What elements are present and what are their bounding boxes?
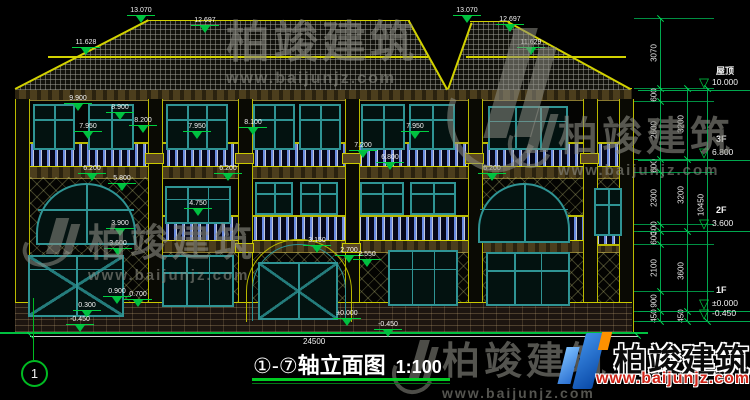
elevation-marker-triangle bbox=[117, 184, 127, 191]
cad-elevation-canvas: 2450013.07012.69711.62813.07012.69711.62… bbox=[0, 0, 750, 400]
level-line bbox=[638, 321, 750, 322]
elevation-marker: -0.450 bbox=[371, 321, 405, 337]
level-line bbox=[638, 90, 750, 91]
dimension-text: 2100 bbox=[650, 259, 659, 277]
elevation-marker: 11.628 bbox=[69, 39, 103, 55]
elevation-marker: ±0.000 bbox=[330, 310, 364, 326]
elevation-marker-value: 7.950 bbox=[71, 123, 105, 131]
elevation-marker: 2.550 bbox=[350, 251, 384, 267]
elevation-marker-triangle bbox=[136, 16, 146, 23]
elevation-marker: 7.950 bbox=[398, 123, 432, 139]
level-elevation-text: 10.000 bbox=[712, 77, 738, 87]
elevation-marker-value: 0.700 bbox=[121, 291, 155, 299]
axis-leader-line bbox=[33, 298, 34, 360]
elevation-marker-value: ±0.000 bbox=[330, 310, 364, 318]
dimension-text: 900 bbox=[650, 294, 659, 307]
elevation-marker-triangle bbox=[192, 132, 202, 139]
elevation-marker: 6.200 bbox=[211, 165, 245, 181]
level-name-label: 2F bbox=[716, 205, 727, 215]
extension-line bbox=[634, 18, 714, 19]
elevation-marker-value: 12.697 bbox=[493, 16, 527, 24]
elevation-marker-triangle bbox=[248, 128, 258, 135]
elevation-marker-value: 8.200 bbox=[126, 117, 160, 125]
elevation-marker-value: 7.950 bbox=[398, 123, 432, 131]
elevation-marker-value: 5.800 bbox=[105, 175, 139, 183]
elevation-marker-value: 13.070 bbox=[450, 7, 484, 15]
elevation-marker: 5.800 bbox=[105, 175, 139, 191]
elevation-marker-triangle bbox=[75, 325, 85, 332]
elevation-marker: 7.950 bbox=[71, 123, 105, 139]
elevation-marker: 8.200 bbox=[126, 117, 160, 133]
elevation-marker-value: 8.900 bbox=[103, 104, 137, 112]
elevation-marker-value: 3.150 bbox=[300, 237, 334, 245]
elevation-marker-value: -0.450 bbox=[63, 316, 97, 324]
elevation-marker-value: 12.697 bbox=[188, 17, 222, 25]
elevation-marker-value: 6.200 bbox=[211, 165, 245, 173]
watermark-url-text: www.baijunjz.com bbox=[88, 267, 249, 284]
elevation-marker-triangle bbox=[383, 330, 393, 337]
brand-logo: 柏竣建筑 www.baijunjz.com bbox=[552, 328, 750, 400]
elevation-marker-triangle bbox=[342, 319, 352, 326]
elevation-marker-value: 7.200 bbox=[346, 142, 380, 150]
elevation-marker: 6.800 bbox=[373, 154, 407, 170]
elevation-marker-triangle bbox=[200, 26, 210, 33]
elevation-marker-value: 6.800 bbox=[373, 154, 407, 162]
elevation-marker-triangle bbox=[87, 174, 97, 181]
elevation-marker-triangle bbox=[223, 174, 233, 181]
watermark-url-text: www.baijunjz.com bbox=[558, 162, 719, 179]
extension-line bbox=[634, 291, 714, 292]
elevation-marker-triangle bbox=[115, 113, 125, 120]
elevation-marker-value: 0.300 bbox=[70, 302, 104, 310]
elevation-marker: 8.100 bbox=[236, 119, 270, 135]
elevation-marker-value: 6.200 bbox=[75, 165, 109, 173]
level-elevation-text: ±0.000 bbox=[712, 298, 738, 308]
extension-line bbox=[634, 101, 714, 102]
dimension-text: 600 bbox=[650, 231, 659, 244]
level-name-label: 屋顶 bbox=[716, 64, 734, 77]
axis-range-label: ①-⑦ bbox=[253, 355, 298, 378]
ground-dim-text: 24500 bbox=[300, 337, 328, 346]
drawing-name-label: 轴立面图 bbox=[298, 353, 386, 378]
level-triangle-icon: ▽ bbox=[699, 217, 709, 230]
elevation-marker-triangle bbox=[312, 246, 322, 253]
elevation-marker-triangle bbox=[362, 260, 372, 267]
title-underline-thick bbox=[252, 378, 450, 381]
elevation-marker-value: 13.070 bbox=[124, 7, 158, 15]
watermark-brand-text: 柏竣建筑 bbox=[558, 115, 734, 159]
elevation-marker-triangle bbox=[83, 132, 93, 139]
brand-logo-url: www.baijunjz.com bbox=[596, 370, 750, 388]
elevation-marker-triangle bbox=[385, 163, 395, 170]
drawing-scale-label: 1:100 bbox=[396, 357, 442, 377]
elevation-marker: 6.200 bbox=[75, 165, 109, 181]
elevation-marker: 9.900 bbox=[61, 95, 95, 111]
dimension-text: 10450 bbox=[697, 193, 706, 215]
watermark-brand-text: 柏竣建筑 bbox=[226, 18, 418, 67]
watermark-left: 柏竣建筑 www.baijunjz.com bbox=[88, 212, 256, 285]
level-name-label: 1F bbox=[716, 285, 727, 295]
watermark-top: 柏竣建筑 www.baijunjz.com bbox=[226, 6, 418, 88]
dimension-text: 3070 bbox=[650, 44, 659, 62]
axis-bubble-1: 1 bbox=[21, 360, 48, 387]
level-triangle-icon: ▽ bbox=[699, 307, 709, 320]
watermark-right: 柏竣建筑 www.baijunjz.com bbox=[558, 104, 734, 180]
elevation-marker-triangle bbox=[462, 16, 472, 23]
elevation-marker-triangle bbox=[138, 126, 148, 133]
dimension-text: 3200 bbox=[677, 186, 686, 204]
title-underline-thin bbox=[252, 383, 450, 384]
elevation-marker-value: 7.950 bbox=[180, 123, 214, 131]
elevation-marker-value: 9.900 bbox=[61, 95, 95, 103]
dimension-text: 3600 bbox=[677, 262, 686, 280]
level-elevation-text: -0.450 bbox=[712, 308, 736, 318]
elevation-marker-value: 8.100 bbox=[236, 119, 270, 127]
level-elevation-text: 3.600 bbox=[712, 218, 733, 228]
watermark-url-text: www.baijunjz.com bbox=[226, 70, 396, 87]
drawing-title: ①-⑦轴立面图1:100 bbox=[253, 348, 442, 380]
elevation-marker-triangle bbox=[487, 174, 497, 181]
elevation-marker-value: 11.628 bbox=[69, 39, 103, 47]
elevation-marker-value: -0.450 bbox=[371, 321, 405, 329]
elevation-marker: 13.070 bbox=[450, 7, 484, 23]
elevation-marker-triangle bbox=[81, 48, 91, 55]
elevation-marker: -0.450 bbox=[63, 316, 97, 332]
elevation-marker-value: 4.750 bbox=[181, 200, 215, 208]
level-line bbox=[638, 231, 750, 232]
elevation-marker: 7.950 bbox=[180, 123, 214, 139]
elevation-marker-triangle bbox=[133, 300, 143, 307]
watermark-logo-left bbox=[22, 218, 84, 266]
elevation-marker-triangle bbox=[358, 151, 368, 158]
elevation-marker: 0.700 bbox=[121, 291, 155, 307]
extension-line bbox=[634, 244, 714, 245]
watermark-brand-text: 柏竣建筑 bbox=[88, 223, 256, 265]
elevation-marker-triangle bbox=[73, 104, 83, 111]
elevation-marker: 3.150 bbox=[300, 237, 334, 253]
level-triangle-icon: ▽ bbox=[699, 76, 709, 89]
elevation-marker-triangle bbox=[410, 132, 420, 139]
dimension-text: 2300 bbox=[650, 189, 659, 207]
elevation-marker: 13.070 bbox=[124, 7, 158, 23]
elevation-marker-value: 2.550 bbox=[350, 251, 384, 259]
watermark-logo-right bbox=[508, 106, 560, 168]
elevation-marker: 12.697 bbox=[188, 17, 222, 33]
